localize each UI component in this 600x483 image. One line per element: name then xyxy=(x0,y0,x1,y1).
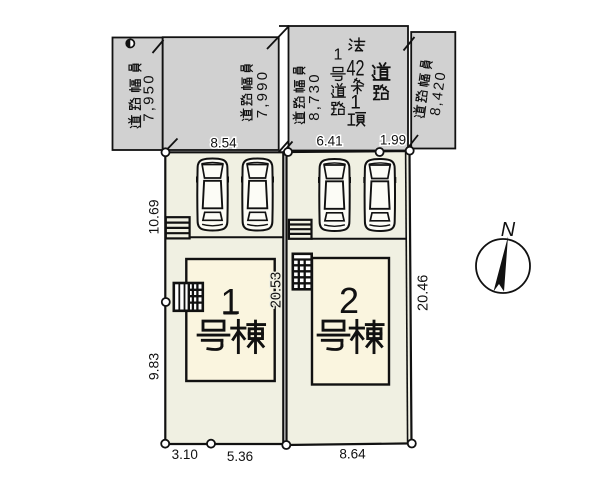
svg-text:8.64: 8.64 xyxy=(339,447,366,462)
svg-text:42: 42 xyxy=(347,56,365,81)
svg-text:20.46: 20.46 xyxy=(416,275,432,311)
svg-text:8.54: 8.54 xyxy=(210,136,237,151)
svg-text:N: N xyxy=(501,219,516,241)
svg-text:9.83: 9.83 xyxy=(146,353,162,380)
svg-text:3.10: 3.10 xyxy=(172,447,198,462)
svg-text:1: 1 xyxy=(334,47,343,64)
svg-text:6.41: 6.41 xyxy=(316,134,342,149)
svg-text:1: 1 xyxy=(220,281,240,322)
svg-text:1: 1 xyxy=(350,93,361,114)
svg-text:7,990: 7,990 xyxy=(254,70,271,119)
svg-text:8,730: 8,730 xyxy=(306,72,323,121)
svg-text:7,950: 7,950 xyxy=(141,73,158,122)
svg-text:20.53: 20.53 xyxy=(269,272,285,308)
svg-text:2: 2 xyxy=(339,280,359,321)
svg-text:10.69: 10.69 xyxy=(146,199,162,234)
svg-text:5.36: 5.36 xyxy=(227,449,253,464)
svg-text:1.99: 1.99 xyxy=(380,133,406,148)
